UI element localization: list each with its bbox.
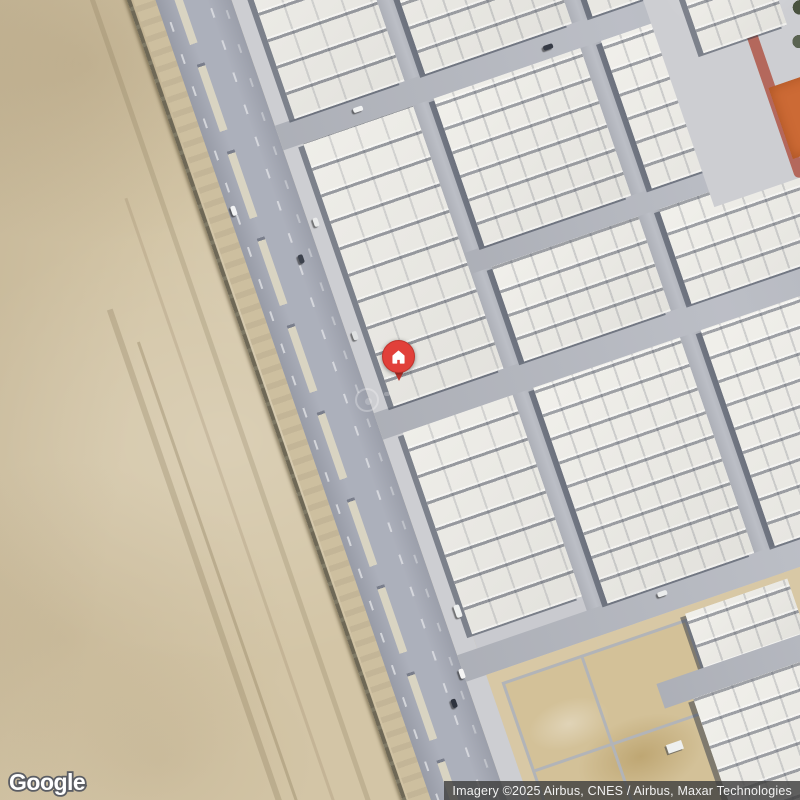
- faint-poi-watermark: [355, 388, 379, 412]
- attribution-text: Imagery ©2025 Airbus, CNES / Airbus, Max…: [452, 784, 792, 798]
- home-icon: [390, 348, 407, 365]
- site-trailer: [666, 740, 684, 754]
- attribution-bar: Imagery ©2025 Airbus, CNES / Airbus, Max…: [444, 781, 800, 800]
- marker-circle: [382, 340, 415, 373]
- watermark-speck: [384, 392, 390, 396]
- satellite-map[interactable]: Google Imagery ©2025 Airbus, CNES / Airb…: [0, 0, 800, 800]
- google-logo[interactable]: Google: [6, 766, 126, 798]
- foundation-wall: [535, 707, 716, 772]
- watermark-dot: [365, 398, 372, 405]
- map-rotated-layer: [0, 0, 800, 800]
- foundation-wall: [581, 657, 647, 800]
- home-marker[interactable]: [382, 340, 415, 384]
- google-logo-text: Google: [9, 769, 85, 795]
